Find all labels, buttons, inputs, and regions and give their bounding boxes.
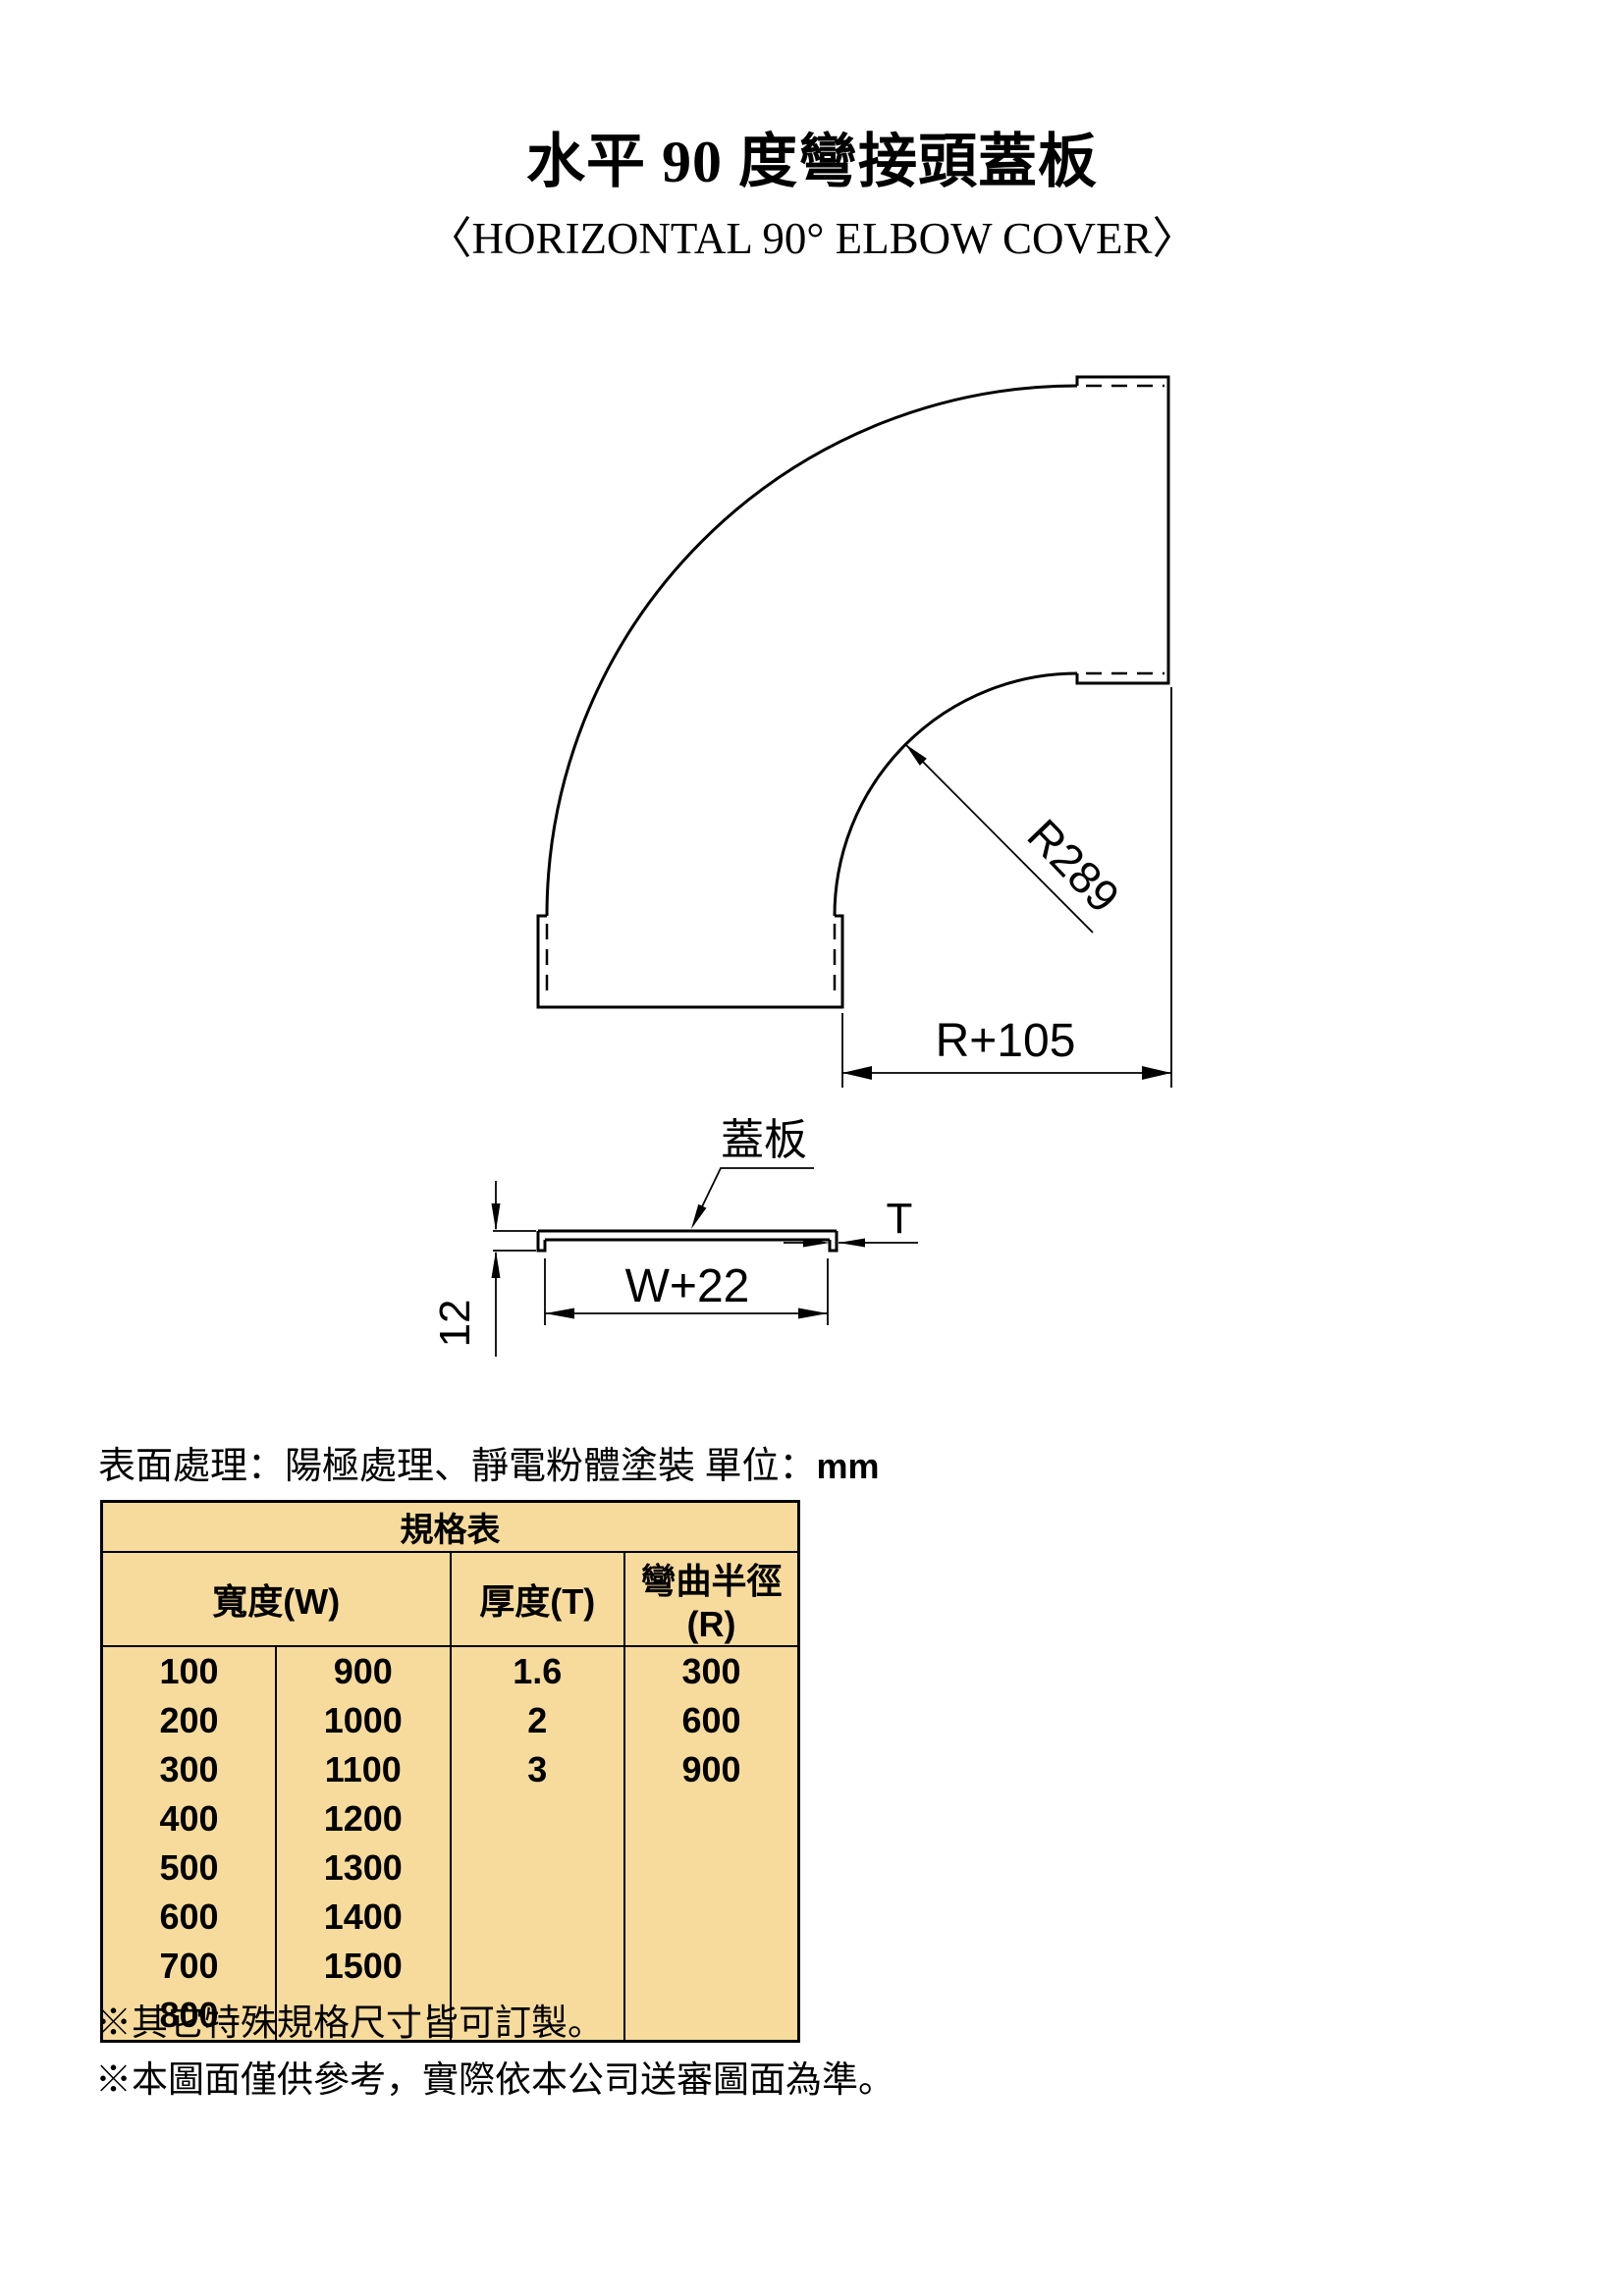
table-row: 600 1400 — [102, 1893, 799, 1942]
elbow-outer-arc — [547, 386, 1077, 916]
cell-r: 300 — [624, 1646, 799, 1696]
cell-r: 600 — [624, 1696, 799, 1745]
cell-r — [624, 1991, 799, 2042]
cell-r — [624, 1843, 799, 1893]
cell-t: 3 — [451, 1745, 625, 1794]
header-width: 寬度(W) — [102, 1552, 451, 1646]
footnote-custom-sizes: ※其它特殊規格尺寸皆可訂製。 — [95, 1993, 604, 2046]
table-row: 700 1500 — [102, 1942, 799, 1991]
spec-table-title-row: 規格表 — [102, 1502, 799, 1553]
footnote-reference-only: ※本圖面僅供參考，實際依本公司送審圖面為準。 — [95, 2050, 894, 2103]
elbow-bottom-tab — [538, 916, 842, 1007]
elbow-view: R289 R+105 — [538, 377, 1171, 1088]
cell-w2: 1500 — [276, 1942, 451, 1991]
cell-w2: 1200 — [276, 1794, 451, 1843]
header-thickness: 厚度(T) — [451, 1552, 625, 1646]
r105-arrowhead-right-icon — [1142, 1066, 1171, 1080]
table-row: 400 1200 — [102, 1794, 799, 1843]
table-row: 500 1300 — [102, 1843, 799, 1893]
table-row: 200 1000 2 600 — [102, 1696, 799, 1745]
cell-r — [624, 1893, 799, 1942]
thickness-label: T — [887, 1195, 913, 1243]
table-row: 100 900 1.6 300 — [102, 1646, 799, 1696]
cell-w1: 300 — [102, 1745, 277, 1794]
radius-arrowhead-icon — [905, 744, 927, 766]
cell-w1: 400 — [102, 1794, 277, 1843]
cell-t: 2 — [451, 1696, 625, 1745]
cell-w1: 700 — [102, 1942, 277, 1991]
page-subtitle: 〈HORIZONTAL 90° ELBOW COVER〉 — [0, 202, 1624, 266]
thickness-arrowhead-left-icon — [839, 1239, 865, 1248]
cell-t: 1.6 — [451, 1646, 625, 1696]
cell-w2: 1400 — [276, 1893, 451, 1942]
cell-t — [451, 1893, 625, 1942]
unit-label: mm — [817, 1446, 880, 1486]
outer-width-label: R+105 — [936, 1015, 1076, 1067]
cell-w2: 900 — [276, 1646, 451, 1696]
cross-section-view: 蓋板 12 T W+22 — [431, 1116, 918, 1357]
header-bend-radius: 彎曲半徑(R) — [624, 1552, 799, 1646]
spec-table-title: 規格表 — [102, 1502, 799, 1553]
elbow-right-end-tabs — [1077, 377, 1168, 683]
spec-table-header-row: 寬度(W) 厚度(T) 彎曲半徑(R) — [102, 1552, 799, 1646]
cover-leader-line — [693, 1168, 814, 1225]
lip-arrowhead-down-icon — [492, 1203, 501, 1231]
table-row: 300 1100 3 900 — [102, 1745, 799, 1794]
lip-arrowhead-up-icon — [492, 1251, 501, 1278]
page-title: 水平 90 度彎接頭蓋板 — [0, 114, 1624, 199]
cell-t — [451, 1942, 625, 1991]
document-page: 水平 90 度彎接頭蓋板 〈HORIZONTAL 90° ELBOW COVER… — [0, 0, 1624, 2296]
cover-profile — [538, 1231, 837, 1251]
cell-r: 900 — [624, 1745, 799, 1794]
width-label: W+22 — [625, 1260, 750, 1312]
cell-w1: 600 — [102, 1893, 277, 1942]
cell-r — [624, 1942, 799, 1991]
cell-w1: 100 — [102, 1646, 277, 1696]
spec-table: 規格表 寬度(W) 厚度(T) 彎曲半徑(R) 100 900 1.6 300 … — [100, 1500, 800, 2043]
cell-r — [624, 1794, 799, 1843]
cover-leader-arrowhead-icon — [691, 1204, 706, 1229]
width-arrowhead-right-icon — [798, 1308, 828, 1319]
surface-treatment-text: 表面處理：陽極處理、靜電粉體塗裝 單位： — [98, 1446, 817, 1487]
radius-leader-line — [905, 744, 1093, 933]
width-arrowhead-left-icon — [545, 1308, 574, 1319]
inner-radius-label: R289 — [1018, 809, 1130, 922]
cell-w2: 1300 — [276, 1843, 451, 1893]
r105-arrowhead-left-icon — [842, 1066, 872, 1080]
cell-w2: 1000 — [276, 1696, 451, 1745]
cell-w2: 1100 — [276, 1745, 451, 1794]
thickness-arrowhead-right-icon — [803, 1239, 830, 1248]
cell-w1: 200 — [102, 1696, 277, 1745]
cell-t — [451, 1794, 625, 1843]
cell-w1: 500 — [102, 1843, 277, 1893]
surface-treatment-note: 表面處理：陽極處理、靜電粉體塗裝 單位：mm — [98, 1435, 880, 1489]
cell-t — [451, 1843, 625, 1893]
cover-label: 蓋板 — [721, 1116, 807, 1164]
elbow-inner-arc — [835, 673, 1077, 916]
lip-height-label: 12 — [431, 1300, 479, 1348]
